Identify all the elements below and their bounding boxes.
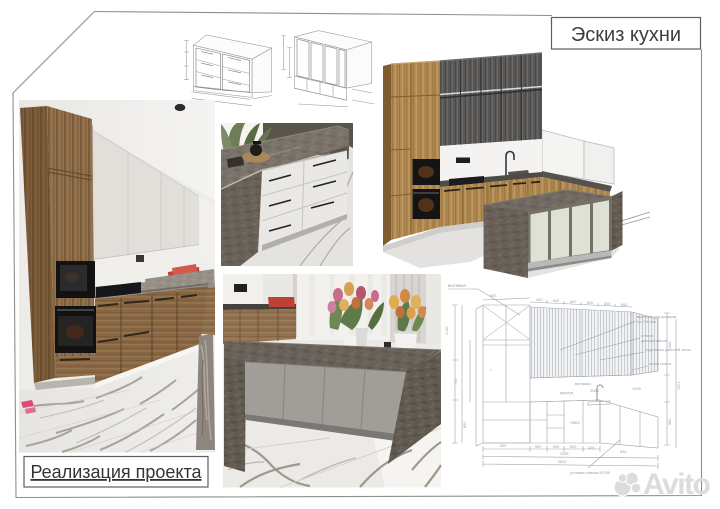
svg-text:600: 600 [553, 299, 559, 303]
svg-text:600: 600 [570, 300, 576, 304]
svg-text:400: 400 [536, 298, 542, 302]
svg-text:2000: 2000 [590, 388, 600, 393]
svg-text:вытяжка: вытяжка [575, 381, 592, 386]
svg-text:вытяжка: вытяжка [448, 283, 466, 288]
svg-text:ПММ: ПММ [570, 420, 580, 425]
svg-text:600: 600 [490, 294, 496, 298]
svg-text:580: 580 [668, 419, 672, 425]
svg-text:кухня полка: кухня полка [649, 361, 672, 366]
svg-text:840: 840 [620, 450, 626, 454]
svg-text:600: 600 [587, 301, 593, 305]
svg-text:2130: 2130 [445, 327, 449, 335]
svg-text:600: 600 [535, 445, 541, 449]
svg-text:1400: 1400 [632, 386, 642, 391]
svg-text:2395: 2395 [560, 452, 568, 456]
svg-text:600: 600 [604, 302, 610, 306]
svg-text:фартук: фартук [560, 390, 574, 395]
svg-text:620: 620 [570, 445, 576, 449]
svg-text:Реализация проекта: Реализация проекта [30, 462, 202, 482]
svg-text:820: 820 [463, 422, 467, 428]
svg-text:Эскиз кухни: Эскиз кухни [571, 24, 681, 46]
svg-text:2600: 2600 [558, 460, 566, 464]
svg-text:900: 900 [668, 342, 672, 348]
svg-text:1371: 1371 [677, 382, 681, 390]
svg-text:на 700 мм: на 700 мм [637, 319, 656, 324]
svg-text:600: 600 [553, 445, 559, 449]
svg-text:600: 600 [500, 444, 506, 448]
svg-text:угловая планка 92*60: угловая планка 92*60 [570, 470, 611, 475]
svg-text:декоративное: декоративное [641, 338, 668, 343]
svg-text:750: 750 [454, 379, 458, 385]
svg-text:600: 600 [621, 303, 627, 307]
svg-text:Avito: Avito [643, 468, 711, 501]
svg-text:426: 426 [588, 446, 594, 450]
